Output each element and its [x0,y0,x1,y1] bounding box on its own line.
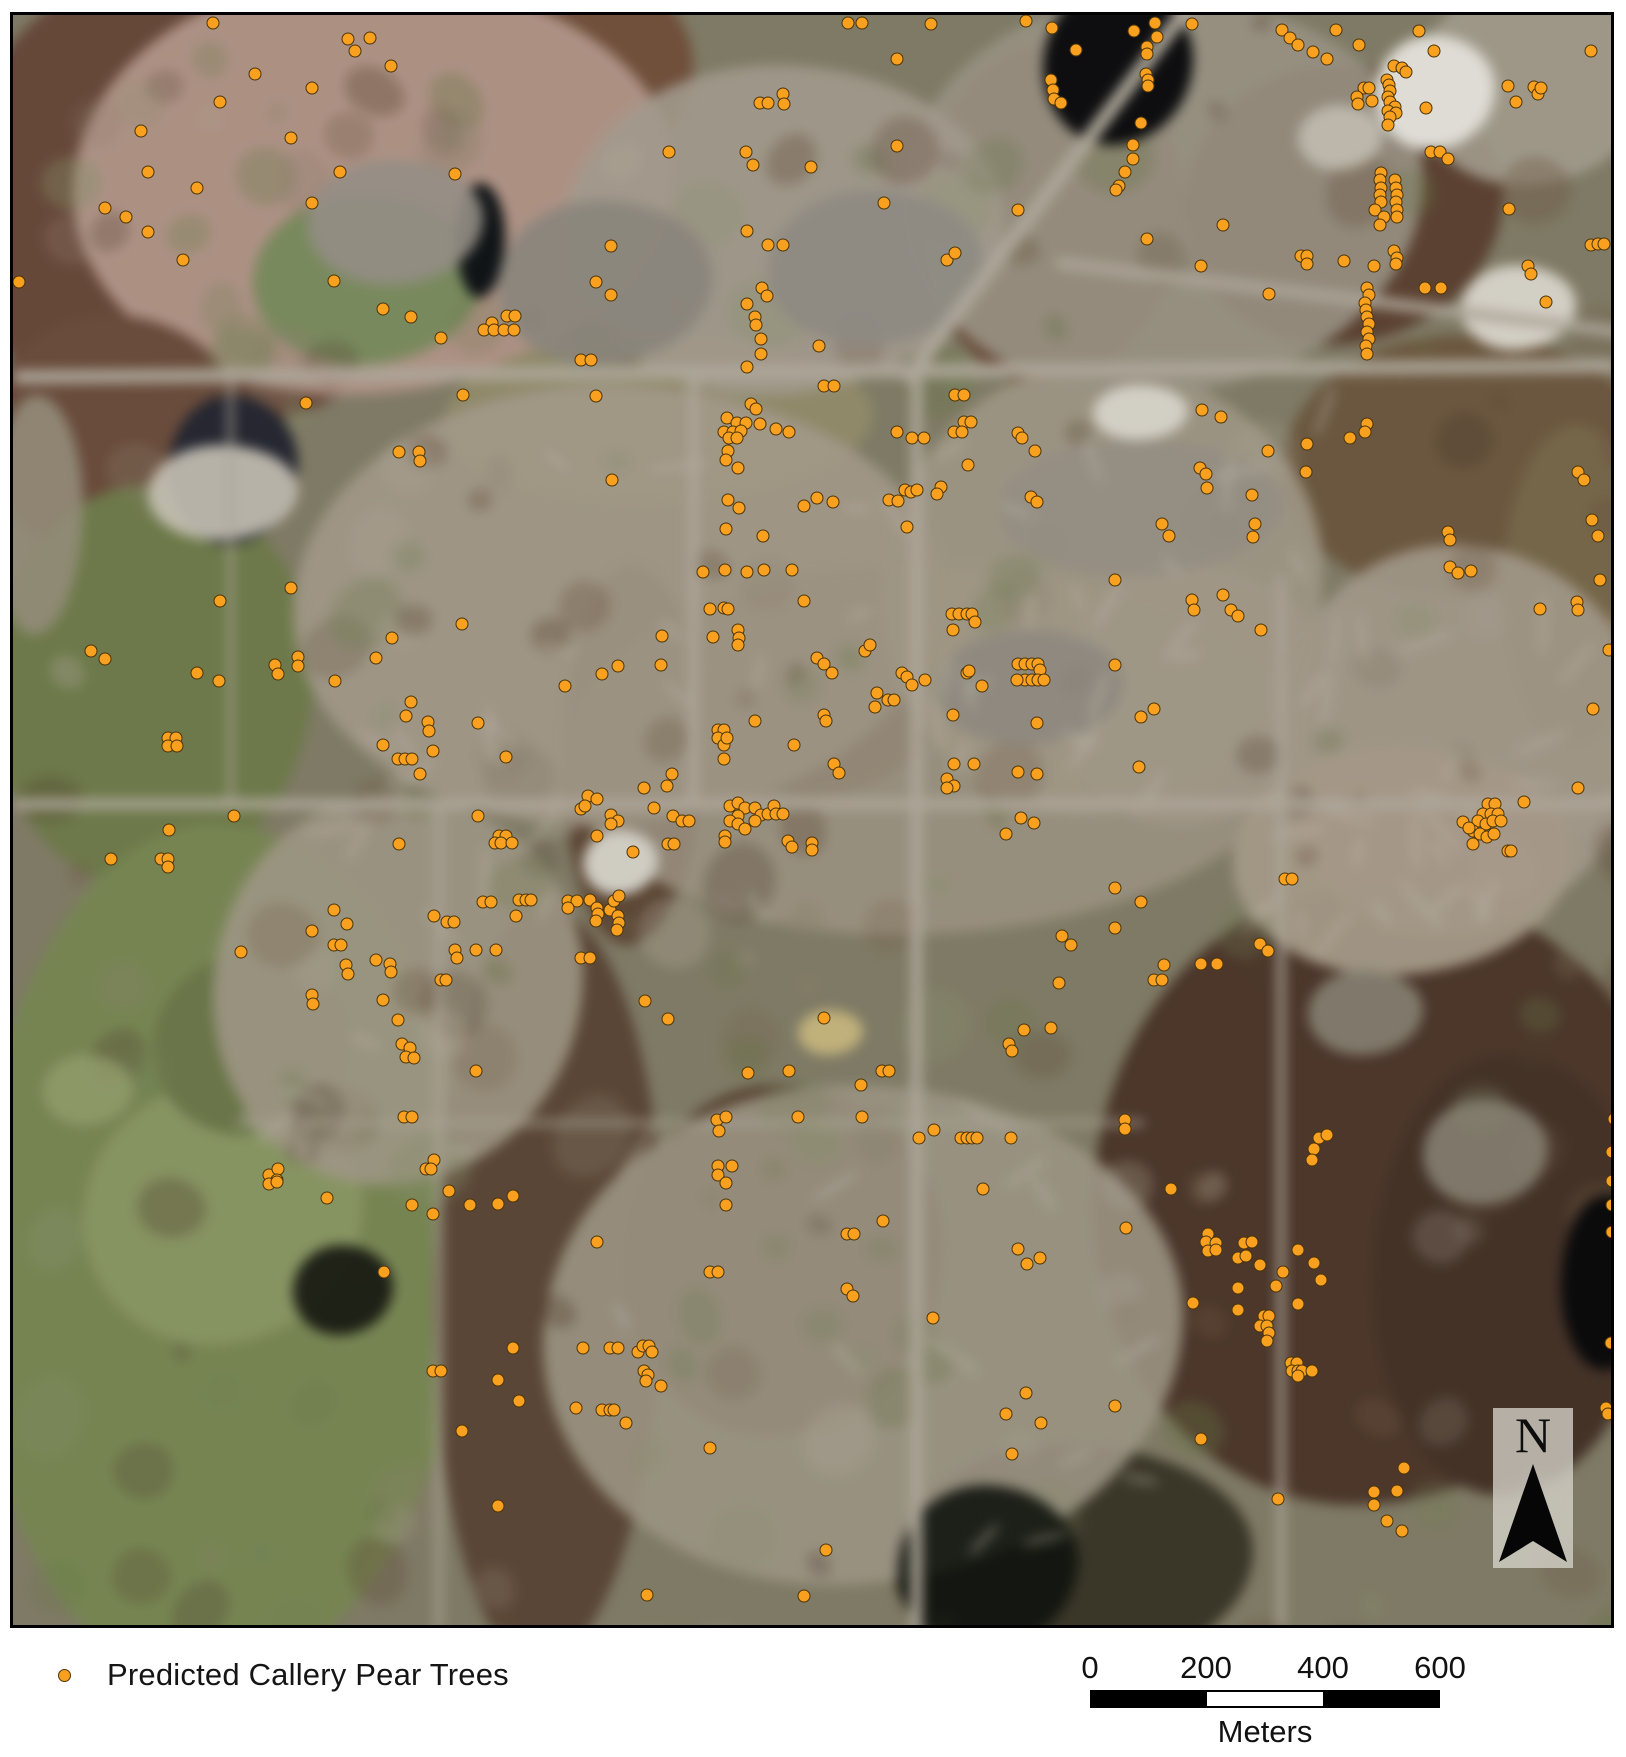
predicted-tree-point [1300,466,1313,479]
predicted-tree-point [948,758,961,771]
predicted-tree-point [969,616,982,629]
scale-tick-400: 400 [1297,1650,1349,1686]
predicted-tree-point [191,182,204,195]
predicted-tree-point [490,944,503,957]
predicted-tree-point [1135,896,1148,909]
predicted-tree-point [662,1013,675,1026]
predicted-tree-point [1240,1250,1253,1263]
predicted-tree-point [443,1185,456,1198]
predicted-tree-point [1021,1258,1034,1271]
predicted-tree-point [562,902,575,915]
predicted-tree-point [1534,603,1547,616]
predicted-tree-point [720,1177,733,1190]
predicted-tree-point [712,1266,725,1279]
predicted-tree-point [891,53,904,66]
predicted-tree-point [1156,518,1169,531]
predicted-tree-point [1034,1252,1047,1265]
predicted-tree-point [1381,1515,1394,1528]
predicted-tree-point [425,1163,438,1176]
predicted-tree-point [591,1236,604,1249]
scale-tick-0: 0 [1081,1650,1098,1686]
predicted-tree-point [1232,610,1245,623]
predicted-tree-point [888,694,901,707]
predicted-tree-point [513,1395,526,1408]
predicted-tree-point [1246,489,1259,502]
predicted-tree-point [271,1176,284,1189]
predicted-tree-point [720,1111,733,1124]
predicted-tree-point [1463,822,1476,835]
predicted-tree-point [1578,474,1591,487]
predicted-tree-point [1151,31,1164,44]
predicted-tree-point [405,696,418,709]
predicted-tree-point [1120,1222,1133,1235]
predicted-tree-point [847,1290,860,1303]
tree-points-layer [13,15,1611,1625]
predicted-tree-point [472,810,485,823]
predicted-tree-point [378,1266,391,1279]
predicted-tree-point [1029,445,1042,458]
predicted-tree-point [1606,1226,1615,1239]
scale-bar-segment [1207,1692,1322,1706]
predicted-tree-point [400,710,413,723]
predicted-tree-point [697,566,710,579]
predicted-tree-point [1127,139,1140,152]
predicted-tree-point [892,495,905,508]
predicted-tree-point [641,1589,654,1602]
scale-bar-ticks: 0 200 400 600 [1090,1650,1440,1684]
predicted-tree-point [342,968,355,981]
predicted-tree-point [786,841,799,854]
predicted-tree-point [492,1374,505,1387]
predicted-tree-point [1215,411,1228,424]
predicted-tree-point [1307,46,1320,59]
predicted-tree-point [306,197,319,210]
predicted-tree-point [1301,438,1314,451]
predicted-tree-point [611,924,624,937]
predicted-tree-point [214,595,227,608]
predicted-tree-point [590,276,603,289]
predicted-tree-point [1012,1243,1025,1256]
predicted-tree-point [386,632,399,645]
predicted-tree-point [971,1132,984,1145]
predicted-tree-point [842,17,855,30]
predicted-tree-point [906,679,919,692]
predicted-tree-point [720,1199,733,1212]
predicted-tree-point [99,202,112,215]
predicted-tree-point [1444,534,1457,547]
predicted-tree-point [171,740,184,753]
predicted-tree-point [719,836,732,849]
predicted-tree-point [741,566,754,579]
predicted-tree-point [1141,233,1154,246]
predicted-tree-point [406,1111,419,1124]
predicted-tree-point [613,890,626,903]
predicted-tree-point [377,303,390,316]
predicted-tree-point [525,894,538,907]
predicted-tree-point [377,739,390,752]
predicted-tree-point [755,333,768,346]
predicted-tree-point [385,966,398,979]
predicted-tree-point [733,502,746,515]
predicted-tree-point [713,1125,726,1138]
predicted-tree-point [1109,1400,1122,1413]
predicted-tree-point [584,952,597,965]
predicted-tree-point [228,810,241,823]
predicted-tree-point [1070,44,1083,57]
scale-tick-200: 200 [1180,1650,1232,1686]
predicted-tree-point [370,954,383,967]
predicted-tree-point [828,380,841,393]
predicted-tree-point [1540,296,1553,309]
predicted-tree-point [1247,531,1260,544]
predicted-tree-point [377,994,390,1007]
predicted-tree-point [918,432,931,445]
predicted-tree-point [848,1228,861,1241]
predicted-tree-point [590,915,603,928]
predicted-tree-point [741,225,754,238]
predicted-tree-point [596,668,609,681]
predicted-tree-point [976,680,989,693]
predicted-tree-point [1413,25,1426,38]
predicted-tree-point [1420,102,1433,115]
predicted-tree-point [668,838,681,851]
scale-tick-600: 600 [1414,1650,1466,1686]
predicted-tree-point [792,1111,805,1124]
predicted-tree-point [1012,204,1025,217]
predicted-tree-point [648,802,661,815]
predicted-tree-point [1046,22,1059,35]
predicted-tree-point [1119,166,1132,179]
predicted-tree-point [1306,1365,1319,1378]
predicted-tree-point [300,397,313,410]
predicted-tree-point [449,168,462,181]
predicted-tree-point [761,290,774,303]
predicted-tree-point [342,33,355,46]
predicted-tree-point [963,665,976,678]
predicted-tree-point [747,159,760,172]
predicted-tree-point [640,1375,653,1388]
predicted-tree-point [191,667,204,680]
predicted-tree-point [321,1192,334,1205]
predicted-tree-point [749,815,762,828]
predicted-tree-point [661,780,674,793]
predicted-tree-point [919,674,932,687]
predicted-tree-point [435,332,448,345]
predicted-tree-point [570,1402,583,1415]
scale-bar: 0 200 400 600 Meters [1090,1650,1440,1750]
predicted-tree-point [1592,530,1605,543]
predicted-tree-point [349,45,362,58]
predicted-tree-point [820,1544,833,1557]
predicted-tree-point [414,455,427,468]
predicted-tree-point [440,974,453,987]
predicted-tree-point [1400,66,1413,79]
predicted-tree-point [1255,624,1268,637]
predicted-tree-point [1286,873,1299,886]
predicted-tree-point [941,782,954,795]
predicted-tree-point [704,603,717,616]
predicted-tree-point [1272,1493,1285,1506]
predicted-tree-point [750,319,763,332]
predicted-tree-point [1359,426,1372,439]
predicted-tree-point [805,161,818,174]
predicted-tree-point [891,140,904,153]
predicted-tree-point [1006,1448,1019,1461]
predicted-tree-point [731,432,744,445]
predicted-tree-point [1031,717,1044,730]
predicted-tree-point [328,275,341,288]
predicted-tree-point [1232,1282,1245,1295]
predicted-tree-point [1361,348,1374,361]
predicted-tree-point [1016,432,1029,445]
predicted-tree-point [1465,565,1478,578]
satellite-map-frame: N [10,12,1614,1628]
predicted-tree-point [1210,1244,1223,1257]
predicted-tree-point [577,1342,590,1355]
predicted-tree-point [786,564,799,577]
predicted-tree-point [612,660,625,673]
predicted-tree-point [456,1425,469,1438]
predicted-tree-point [1292,1244,1305,1257]
predicted-tree-point [1608,1113,1615,1126]
predicted-tree-point [1028,817,1041,830]
predicted-tree-point [1038,674,1051,687]
predicted-tree-point [427,745,440,758]
predicted-tree-point [507,1342,520,1355]
predicted-tree-point [590,390,603,403]
predicted-tree-point [1195,1433,1208,1446]
predicted-tree-point [1149,17,1162,30]
predicted-tree-point [1535,82,1548,95]
predicted-tree-point [770,423,783,436]
predicted-tree-point [408,1052,421,1065]
predicted-tree-point [1011,674,1024,687]
predicted-tree-point [13,276,26,289]
predicted-tree-point [1045,1022,1058,1035]
predicted-tree-point [235,946,248,959]
predicted-tree-point [334,166,347,179]
predicted-tree-point [1135,117,1148,130]
predicted-tree-point [405,311,418,324]
predicted-tree-point [364,32,377,45]
predicted-tree-point [470,944,483,957]
predicted-tree-point [968,758,981,771]
predicted-tree-point [720,523,733,536]
predicted-tree-point [732,639,745,652]
predicted-tree-point [306,82,319,95]
predicted-tree-point [827,496,840,509]
predicted-tree-point [1368,1486,1381,1499]
predicted-tree-point [1031,768,1044,781]
predicted-tree-point [1035,1417,1048,1430]
predicted-tree-point [755,348,768,361]
predicted-tree-point [506,837,519,850]
predicted-tree-point [913,1132,926,1145]
legend: Predicted Callery Pear Trees [58,1654,509,1696]
predicted-tree-point [1254,1259,1267,1272]
predicted-tree-point [949,247,962,260]
predicted-tree-point [470,1065,483,1078]
predicted-tree-point [627,846,640,859]
predicted-tree-point [105,853,118,866]
predicted-tree-point [813,340,826,353]
predicted-tree-point [977,1183,990,1196]
predicted-tree-point [608,1404,621,1417]
predicted-tree-point [1217,589,1230,602]
predicted-tree-point [1390,258,1403,271]
predicted-tree-point [1165,1183,1178,1196]
predicted-tree-point [1018,1024,1031,1037]
scale-bar-segment [1323,1692,1438,1706]
predicted-tree-point [1435,282,1448,295]
predicted-tree-point [1201,482,1214,495]
predicted-tree-point [1374,219,1387,232]
predicted-tree-point [1000,1408,1013,1421]
predicted-tree-point [142,226,155,239]
predicted-tree-point [1012,766,1025,779]
predicted-tree-point [720,454,733,467]
predicted-tree-point [958,389,971,402]
predicted-tree-point [639,995,652,1008]
predicted-tree-point [740,146,753,159]
predicted-tree-point [492,1198,505,1211]
predicted-tree-point [758,564,771,577]
predicted-tree-point [1127,153,1140,166]
predicted-tree-point [749,715,762,728]
predicted-tree-point [406,753,419,766]
predicted-tree-point [1000,828,1013,841]
predicted-tree-point [585,354,598,367]
predicted-tree-point [214,96,227,109]
predicted-tree-point [393,446,406,459]
predicted-tree-point [833,767,846,780]
predicted-tree-point [1141,48,1154,61]
predicted-tree-point [1142,80,1155,93]
predicted-tree-point [1015,812,1028,825]
predicted-tree-point [335,939,348,952]
predicted-tree-point [1217,219,1230,232]
predicted-tree-point [1338,255,1351,268]
predicted-tree-point [272,668,285,681]
predicted-tree-point [1187,1297,1200,1310]
predicted-tree-point [1188,604,1201,617]
predicted-tree-point [1321,53,1334,66]
predicted-tree-point [612,1342,625,1355]
predicted-tree-point [292,660,305,673]
predicted-tree-point [99,653,112,666]
predicted-tree-point [741,361,754,374]
predicted-tree-point [820,715,833,728]
predicted-tree-point [1572,604,1585,617]
predicted-tree-point [559,680,572,693]
predicted-tree-point [1119,1123,1132,1136]
predicted-tree-point [1292,1298,1305,1311]
predicted-tree-point [1005,1132,1018,1145]
predicted-tree-point [1330,24,1343,37]
predicted-tree-point [1603,644,1615,657]
predicted-tree-point [683,815,696,828]
predicted-tree-point [451,952,464,965]
predicted-tree-point [393,838,406,851]
predicted-tree-point [891,426,904,439]
predicted-tree-point [1452,567,1465,580]
predicted-tree-point [1006,1045,1019,1058]
predicted-tree-point [655,1380,668,1393]
predicted-tree-point [783,426,796,439]
predicted-tree-point [864,639,877,652]
predicted-tree-point [826,667,839,680]
predicted-tree-point [856,1111,869,1124]
predicted-tree-point [811,492,824,505]
predicted-tree-point [788,739,801,752]
predicted-tree-point [962,459,975,472]
predicted-tree-point [762,97,775,110]
predicted-tree-point [1292,39,1305,52]
predicted-tree-point [762,239,775,252]
predicted-tree-point [806,844,819,857]
predicted-tree-point [1196,404,1209,417]
predicted-tree-point [507,1190,520,1203]
predicted-tree-point [1200,468,1213,481]
predicted-tree-point [778,98,791,111]
predicted-tree-point [385,60,398,73]
predicted-tree-point [1518,796,1531,809]
north-arrow-icon [1498,1462,1568,1564]
predicted-tree-point [579,800,592,813]
predicted-tree-point [883,1065,896,1078]
predicted-tree-point [427,1208,440,1221]
predicted-tree-point [1109,922,1122,935]
predicted-tree-point [329,675,342,688]
predicted-tree-point [818,1012,831,1025]
predicted-tree-point [1606,1199,1615,1212]
predicted-tree-point [1109,574,1122,587]
predicted-tree-point [1363,82,1376,95]
predicted-tree-point [1277,1266,1290,1279]
predicted-tree-point [666,768,679,781]
predicted-tree-point [1428,45,1441,58]
predicted-tree-point [1158,959,1171,972]
predicted-tree-point [750,403,763,416]
predicted-tree-point [656,630,669,643]
predicted-tree-point [927,1312,940,1325]
predicted-tree-point [925,18,938,31]
predicted-tree-point [406,1199,419,1212]
predicted-tree-point [1232,1304,1245,1317]
predicted-tree-point [1263,288,1276,301]
predicted-tree-point [1606,1146,1615,1159]
predicted-tree-point [448,916,461,929]
legend-label: Predicted Callery Pear Trees [107,1657,509,1693]
predicted-tree-point [370,652,383,665]
predicted-tree-point [798,1590,811,1603]
predicted-tree-point [798,595,811,608]
predicted-tree-point [1156,974,1169,987]
predicted-tree-point [620,1417,633,1430]
predicted-tree-point [1109,659,1122,672]
predicted-tree-point [732,462,745,475]
predicted-tree-point [120,211,133,224]
predicted-tree-point [878,197,891,210]
predicted-tree-point [464,1199,477,1212]
predicted-tree-point [1270,1280,1283,1293]
predicted-tree-point [1605,1337,1615,1350]
predicted-tree-point [1606,1175,1615,1188]
predicted-tree-point [1065,939,1078,952]
predicted-tree-point [1503,203,1516,216]
predicted-tree-point [605,289,618,302]
predicted-tree-point [754,418,767,431]
